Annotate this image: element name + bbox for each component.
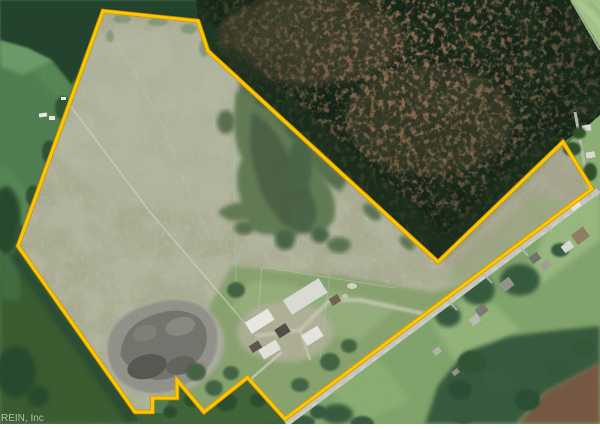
svg-text:REIN, Inc: REIN, Inc bbox=[1, 413, 44, 424]
